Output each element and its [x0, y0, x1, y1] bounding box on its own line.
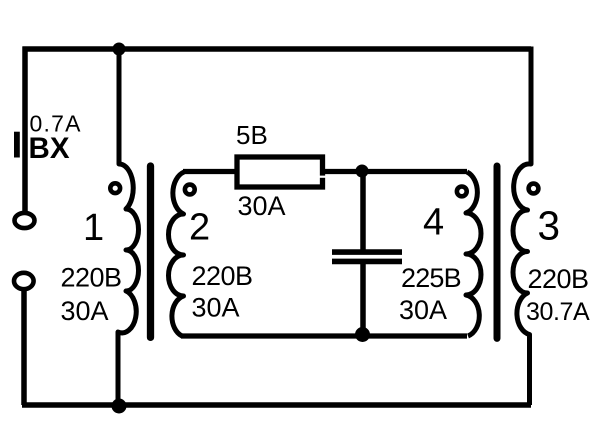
svg-text:3: 3 [538, 203, 561, 249]
svg-text:2: 2 [189, 207, 210, 249]
svg-text:30А: 30А [192, 293, 240, 323]
svg-text:30А: 30А [61, 296, 109, 326]
svg-text:30А: 30А [238, 191, 286, 221]
svg-text:220В: 220В [528, 264, 589, 294]
svg-text:5В: 5В [236, 120, 268, 150]
svg-text:ВХ: ВХ [29, 132, 71, 165]
svg-text:220В: 220В [61, 263, 122, 293]
svg-text:220В: 220В [192, 261, 253, 291]
svg-text:225В: 225В [401, 263, 461, 293]
svg-text:4: 4 [423, 202, 444, 244]
svg-text:30А: 30А [399, 295, 447, 325]
svg-text:1: 1 [83, 207, 104, 249]
svg-text:30.7А: 30.7А [526, 298, 590, 326]
